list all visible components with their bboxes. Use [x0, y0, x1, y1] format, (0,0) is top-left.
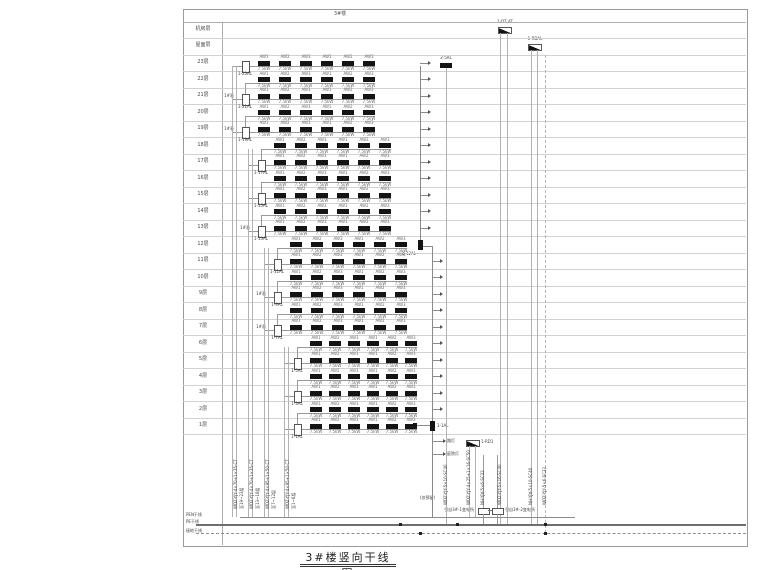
floor-branch-line	[420, 112, 428, 113]
distribution-box	[374, 308, 386, 313]
box-power-label: 7.5kW	[363, 430, 383, 435]
distribution-box	[386, 358, 398, 363]
box-id-label: AW3	[296, 55, 316, 60]
box-id-label: AW3	[359, 55, 379, 60]
distribution-box	[332, 292, 344, 297]
box-id-label: AW1	[306, 418, 326, 423]
distribution-box	[386, 407, 398, 412]
box-id-label: AW3	[344, 369, 364, 374]
distribution-box	[274, 143, 286, 148]
box-id-label: AW1	[363, 336, 383, 341]
box-id-label: AW3	[375, 138, 395, 143]
machine-room-leg	[500, 33, 501, 524]
box-id-label: AW1	[363, 418, 383, 423]
box-id-label: AW1	[333, 220, 353, 225]
box-id-label: AW1	[286, 270, 306, 275]
meter-box-label: 1-1AL	[286, 435, 308, 440]
floor-branch-line	[432, 261, 440, 262]
arrow-right-icon	[440, 292, 443, 296]
meter-box-label: 1-9AL	[266, 303, 288, 308]
riser-dest-label: 至7~12层	[272, 490, 277, 509]
distribution-box	[374, 242, 386, 247]
box-id-label: AW1	[349, 286, 369, 291]
box-id-label: AW1	[254, 88, 274, 93]
box-id-label: AW2	[370, 286, 390, 291]
distribution-box	[274, 226, 286, 231]
distribution-box	[316, 226, 328, 231]
distribution-box	[295, 176, 307, 181]
distribution-box	[258, 127, 270, 132]
distribution-box	[379, 209, 391, 214]
box-power-label: 7.5kW	[382, 430, 402, 435]
distribution-box	[405, 374, 417, 379]
distribution-box	[295, 193, 307, 198]
floor-label: 18层	[187, 143, 219, 149]
floor-label: 11层	[187, 258, 219, 264]
floor-branch-line	[432, 277, 440, 278]
box-id-label: AW2	[325, 385, 345, 390]
box-id-label: AW3	[344, 385, 364, 390]
distribution-box	[295, 226, 307, 231]
meter-up-feed-line	[277, 248, 278, 260]
arrow-right-icon	[428, 77, 431, 81]
riser-dest-label: 至1~6层	[292, 493, 297, 509]
arrow-right-icon	[440, 308, 443, 312]
distribution-box	[374, 259, 386, 264]
floor-label: 4层	[187, 374, 219, 380]
box-id-label: AW1	[349, 237, 369, 242]
street-light-branch	[432, 441, 443, 442]
distribution-box	[332, 308, 344, 313]
floor-label: 机房层	[187, 27, 219, 33]
floor-branch-line	[432, 409, 440, 410]
distribution-box	[379, 193, 391, 198]
floor-label: 1层	[187, 423, 219, 429]
f1-public-panel-label: 1-1AL	[437, 424, 461, 429]
distribution-box	[342, 61, 354, 66]
box-id-label: AW2	[338, 88, 358, 93]
floor-label: 7层	[187, 324, 219, 330]
title-underline-2	[300, 566, 396, 567]
distribution-box	[310, 391, 322, 396]
floor-label: 3层	[187, 390, 219, 396]
box-id-label: AW3	[344, 352, 364, 357]
box-id-label: AW1	[286, 253, 306, 258]
box-id-label: AW3	[296, 88, 316, 93]
meter-box-label: 1-23AL	[234, 72, 256, 77]
box-id-label: AW3	[344, 336, 364, 341]
meter-box-label: 1-17AL	[250, 171, 272, 176]
floor-branch-line	[420, 96, 428, 97]
f23-public-panel-label: 2-5AL	[434, 56, 458, 61]
box-id-label: AW2	[307, 270, 327, 275]
box-id-label: AW3	[375, 220, 395, 225]
distribution-box	[367, 407, 379, 412]
distribution-box	[279, 77, 291, 82]
floor-branch-line	[432, 343, 440, 344]
distribution-box	[329, 391, 341, 396]
arrow-right-icon	[428, 127, 431, 131]
box-id-label: AW1	[349, 253, 369, 258]
box-id-label: AW1	[270, 154, 290, 159]
apartment-riser-line	[232, 66, 233, 517]
distribution-box	[386, 341, 398, 346]
distribution-box	[342, 77, 354, 82]
arrow-right-icon	[428, 94, 431, 98]
box-id-label: AW3	[359, 88, 379, 93]
distribution-box	[367, 391, 379, 396]
floor-divider	[183, 220, 746, 221]
box-id-label: AW2	[307, 286, 327, 291]
riser-cable-spec: WDZ-YJY-4×95+1×50-CT	[286, 459, 291, 509]
floor-label: 8层	[187, 308, 219, 314]
distribution-box	[374, 292, 386, 297]
public-riser-line-lower	[432, 246, 433, 518]
distribution-box	[316, 143, 328, 148]
box-id-label: AW2	[325, 418, 345, 423]
meter-up-feed-line	[261, 182, 262, 194]
box-id-label: AW3	[328, 303, 348, 308]
floor-branch-line	[432, 310, 440, 311]
header-divider	[183, 22, 746, 23]
distribution-box	[316, 160, 328, 165]
distribution-box	[348, 374, 360, 379]
riser-cable-spec: WDZ-YJY-4×70+1×35-CT	[250, 459, 255, 509]
distribution-box	[311, 292, 323, 297]
floor-divider	[183, 187, 746, 188]
floor-label-column-divider	[222, 22, 223, 545]
distribution-box	[363, 127, 375, 132]
spare-riser-dashed-line	[545, 55, 546, 533]
distribution-box	[310, 407, 322, 412]
f23-panel-riser-line	[446, 68, 447, 524]
box-id-label: AW1	[363, 402, 383, 407]
distribution-box	[300, 110, 312, 115]
distribution-box	[274, 160, 286, 165]
floor-branch-line	[420, 63, 428, 64]
arrow-right-icon	[440, 407, 443, 411]
box-id-label: AW3	[296, 121, 316, 126]
box-id-label: AW1	[317, 55, 337, 60]
distribution-box	[379, 160, 391, 165]
distribution-box	[374, 325, 386, 330]
floor-label: 21层	[187, 93, 219, 99]
box-id-label: AW1	[270, 171, 290, 176]
bus-connection-dot	[399, 523, 402, 526]
box-id-label: AW1	[254, 121, 274, 126]
distribution-box	[367, 358, 379, 363]
distribution-box	[395, 259, 407, 264]
distribution-box	[274, 193, 286, 198]
distribution-box	[353, 325, 365, 330]
distribution-box	[300, 94, 312, 99]
box-id-label: AW2	[382, 336, 402, 341]
distribution-box	[279, 127, 291, 132]
box-id-label: AW2	[354, 138, 374, 143]
box-power-label: 7.5kW	[286, 331, 306, 336]
box-id-label: AW1	[333, 138, 353, 143]
distribution-box	[310, 341, 322, 346]
floor-branch-line	[420, 162, 428, 163]
floor-divider	[183, 38, 746, 39]
box-id-label: AW2	[354, 171, 374, 176]
street-light-label: 路灯	[447, 439, 455, 444]
box-id-label: AW3	[375, 204, 395, 209]
roof-panel-leg	[531, 50, 532, 524]
distribution-box	[367, 374, 379, 379]
box-id-label: AW2	[354, 220, 374, 225]
box-id-label: AW2	[354, 204, 374, 209]
box-id-label: AW3	[344, 402, 364, 407]
box-id-label: AW3	[359, 72, 379, 77]
box-id-label: AW1	[270, 204, 290, 209]
box-id-label: AW1	[333, 154, 353, 159]
meter-up-feed-line	[297, 347, 298, 359]
box-id-label: AW3	[328, 237, 348, 242]
distribution-box	[386, 374, 398, 379]
floor-branch-line	[420, 211, 428, 212]
distribution-box	[395, 325, 407, 330]
box-id-label: AW3	[391, 286, 411, 291]
distribution-box	[321, 110, 333, 115]
meter-up-feed-line	[277, 281, 278, 293]
apartment-riser-line	[236, 66, 237, 517]
floor-label: 14层	[187, 209, 219, 215]
meter-box-label: 1-21AL	[234, 105, 256, 110]
box-id-label: AW2	[275, 55, 295, 60]
box-id-label: AW1	[349, 270, 369, 275]
arrow-right-icon	[440, 259, 443, 263]
box-id-label: AW2	[370, 237, 390, 242]
distribution-box	[258, 94, 270, 99]
meter-up-feed-line	[297, 380, 298, 392]
distribution-box	[310, 374, 322, 379]
meter-up-feed-line	[261, 215, 262, 227]
box-id-label: AW3	[401, 385, 421, 390]
box-id-label: AW1	[363, 369, 383, 374]
box-id-label: AW2	[307, 319, 327, 324]
bus-connection-dot	[544, 532, 547, 535]
box-id-label: AW2	[370, 253, 390, 258]
floor-label: 19层	[187, 126, 219, 132]
distribution-box	[290, 325, 302, 330]
floor-label: 23层	[187, 60, 219, 66]
distribution-box	[353, 259, 365, 264]
distribution-box	[274, 209, 286, 214]
distribution-box	[353, 292, 365, 297]
box-id-label: AW3	[375, 154, 395, 159]
arrow-right-icon	[428, 61, 431, 65]
distribution-box	[348, 407, 360, 412]
box-power-label: 7.5kW	[325, 430, 345, 435]
box-id-label: AW2	[370, 319, 390, 324]
box-id-label: AW1	[333, 187, 353, 192]
box-id-label: AW3	[312, 171, 332, 176]
distribution-box	[321, 127, 333, 132]
box-id-label: AW3	[391, 270, 411, 275]
box-id-label: AW2	[275, 105, 295, 110]
distribution-box	[379, 143, 391, 148]
box-id-label: AW1	[306, 369, 326, 374]
box-id-label: AW3	[328, 270, 348, 275]
source-down-line	[497, 514, 498, 524]
floor-label: 12层	[187, 242, 219, 248]
distribution-box	[405, 391, 417, 396]
distribution-box	[395, 292, 407, 297]
distribution-box	[374, 275, 386, 280]
box-id-label: AW3	[401, 352, 421, 357]
box-id-label: AW3	[359, 121, 379, 126]
arrow-right-icon	[440, 325, 443, 329]
box-id-label: AW1	[270, 138, 290, 143]
arrow-right-icon	[428, 160, 431, 164]
distribution-box	[342, 127, 354, 132]
box-id-label: AW2	[275, 72, 295, 77]
distribution-box	[337, 226, 349, 231]
box-id-label: AW3	[391, 319, 411, 324]
distribution-box	[337, 209, 349, 214]
distribution-box	[379, 226, 391, 231]
floor-label: 5层	[187, 357, 219, 363]
floor-label: 10层	[187, 275, 219, 281]
box-id-label: AW2	[370, 303, 390, 308]
distribution-box	[290, 292, 302, 297]
distribution-box	[311, 259, 323, 264]
box-id-label: AW2	[291, 187, 311, 192]
distribution-box	[258, 61, 270, 66]
trunk-cable-spec: WDZ-YJY-4×25+1×16-SC50	[467, 450, 472, 505]
distribution-box	[290, 242, 302, 247]
meter-box-label: 1-13AL	[250, 237, 272, 242]
distribution-box	[258, 77, 270, 82]
box-id-label: AW2	[291, 154, 311, 159]
distribution-box	[353, 308, 365, 313]
distribution-box	[367, 424, 379, 429]
box-id-label: AW1	[317, 121, 337, 126]
title-underline	[300, 564, 396, 565]
meter-up-feed-line	[277, 314, 278, 326]
box-id-label: AW3	[312, 138, 332, 143]
distribution-box	[353, 275, 365, 280]
box-id-label: AW2	[382, 369, 402, 374]
public-riser-jog	[422, 246, 432, 247]
box-id-label: AW3	[375, 171, 395, 176]
box-id-label: AW3	[391, 303, 411, 308]
pen-bus-line	[240, 517, 575, 518]
box-id-label: AW1	[317, 72, 337, 77]
box-id-label: AW2	[291, 171, 311, 176]
meter-up-feed-line	[297, 413, 298, 425]
roof-panel-leg	[537, 50, 538, 524]
public-riser-line-upper	[420, 66, 421, 245]
floor-branch-line	[420, 178, 428, 179]
distribution-box	[332, 325, 344, 330]
box-id-label: AW1	[317, 88, 337, 93]
box-id-label: AW3	[359, 105, 379, 110]
floor-label: 6层	[187, 341, 219, 347]
box-id-label: AW3	[391, 253, 411, 258]
distribution-box	[337, 143, 349, 148]
distribution-box	[311, 242, 323, 247]
box-id-label: AW3	[296, 105, 316, 110]
box-id-label: AW1	[270, 187, 290, 192]
distribution-box	[295, 209, 307, 214]
distribution-box	[395, 308, 407, 313]
floor-label: 17层	[187, 159, 219, 165]
box-id-label: AW2	[307, 237, 327, 242]
distribution-box	[337, 160, 349, 165]
distribution-box	[311, 308, 323, 313]
box-id-label: AW2	[325, 402, 345, 407]
box-id-label: AW1	[306, 336, 326, 341]
bus-label-pen: PEN干线	[186, 513, 220, 518]
distribution-box	[274, 176, 286, 181]
box-id-label: AW2	[275, 88, 295, 93]
distribution-box	[300, 77, 312, 82]
arrow-right-icon	[428, 226, 431, 230]
distribution-box	[290, 275, 302, 280]
distribution-box	[311, 275, 323, 280]
distribution-box	[348, 424, 360, 429]
box-id-label: AW1	[333, 171, 353, 176]
box-id-label: AW1	[349, 303, 369, 308]
distribution-box	[405, 407, 417, 412]
distribution-box	[395, 275, 407, 280]
floor-branch-line	[432, 393, 440, 394]
distribution-box	[316, 176, 328, 181]
floor-branch-line	[420, 129, 428, 130]
meter-box-label: 1-11AL	[266, 270, 288, 275]
distribution-box	[329, 424, 341, 429]
arrow-right-icon	[440, 374, 443, 378]
box-id-label: AW1	[254, 72, 274, 77]
box-id-label: AW3	[401, 402, 421, 407]
distribution-box	[358, 176, 370, 181]
arrow-right-icon	[428, 110, 431, 114]
box-id-label: AW1	[306, 385, 326, 390]
source-left-label: 引自3#-1变电所	[428, 508, 474, 513]
distribution-box	[337, 193, 349, 198]
box-id-label: AW2	[325, 369, 345, 374]
distribution-box	[295, 160, 307, 165]
box-id-label: AW1	[270, 220, 290, 225]
box-id-label: AW2	[291, 220, 311, 225]
distribution-box	[379, 176, 391, 181]
distribution-box	[332, 242, 344, 247]
box-id-label: AW1	[286, 303, 306, 308]
distribution-box	[300, 61, 312, 66]
box-id-label: AW1	[254, 55, 274, 60]
box-power-label: 7.5kW	[306, 430, 326, 435]
distribution-box	[279, 61, 291, 66]
box-id-label: AW2	[382, 402, 402, 407]
distribution-box	[300, 127, 312, 132]
distribution-box	[358, 160, 370, 165]
box-id-label: AW1	[286, 319, 306, 324]
distribution-box	[316, 193, 328, 198]
floor-label: 15层	[187, 192, 219, 198]
distribution-box	[332, 259, 344, 264]
distribution-box	[342, 94, 354, 99]
floor-label: 20层	[187, 110, 219, 116]
distribution-box	[279, 94, 291, 99]
distribution-box	[258, 110, 270, 115]
distribution-box	[367, 341, 379, 346]
distribution-box	[321, 77, 333, 82]
riser-cable-spec: WDZ-YJY-4×70+1×35-CT	[234, 459, 239, 509]
distribution-box	[290, 259, 302, 264]
arrow-right-icon	[440, 391, 443, 395]
